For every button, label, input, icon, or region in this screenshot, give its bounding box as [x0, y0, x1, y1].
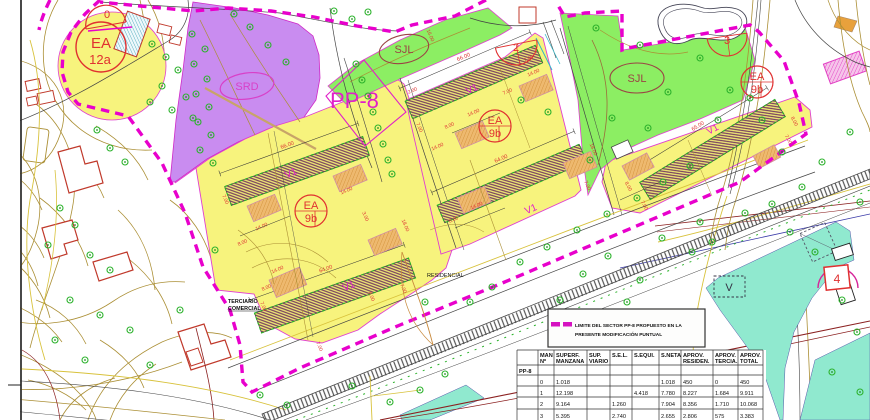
svg-text:1.018: 1.018: [661, 380, 675, 386]
svg-text:1: 1: [540, 391, 543, 397]
svg-text:2.740: 2.740: [612, 414, 626, 420]
svg-text:0: 0: [540, 380, 543, 386]
svg-text:SJL: SJL: [628, 73, 647, 85]
svg-text:9.911: 9.911: [740, 391, 754, 397]
svg-text:9b: 9b: [305, 213, 317, 225]
svg-text:EA: EA: [304, 200, 319, 212]
svg-text:2: 2: [513, 42, 519, 54]
svg-text:0: 0: [715, 380, 718, 386]
svg-text:2: 2: [540, 402, 543, 408]
svg-text:0: 0: [104, 9, 110, 21]
svg-text:9b: 9b: [751, 84, 763, 96]
svg-text:EA: EA: [750, 71, 765, 83]
svg-text:1.684: 1.684: [715, 391, 729, 397]
svg-text:12a: 12a: [89, 52, 111, 67]
svg-text:8.356: 8.356: [683, 402, 697, 408]
svg-text:S.EQUI.: S.EQUI.: [634, 353, 655, 359]
svg-text:VIARIO: VIARIO: [589, 359, 609, 365]
svg-text:575: 575: [715, 414, 724, 420]
svg-text:5.395: 5.395: [556, 414, 570, 420]
svg-text:TERCIA.: TERCIA.: [715, 359, 738, 365]
svg-text:EA: EA: [91, 35, 111, 52]
svg-text:7.780: 7.780: [661, 391, 675, 397]
svg-text:4.418: 4.418: [634, 391, 648, 397]
svg-text:2.806: 2.806: [683, 414, 697, 420]
svg-text:7.904: 7.904: [661, 402, 675, 408]
svg-text:10.068: 10.068: [740, 402, 757, 408]
svg-text:S.E.L.: S.E.L.: [612, 353, 628, 359]
svg-text:3: 3: [724, 35, 730, 47]
svg-text:SRD: SRD: [235, 81, 258, 93]
svg-text:TERCIARIO: TERCIARIO: [228, 299, 258, 305]
svg-text:12.198: 12.198: [556, 391, 573, 397]
svg-text:3.383: 3.383: [740, 414, 754, 420]
svg-text:9b: 9b: [489, 128, 501, 140]
svg-text:8.227: 8.227: [683, 391, 697, 397]
svg-text:9.164: 9.164: [556, 402, 570, 408]
svg-text:S.NETA: S.NETA: [661, 353, 681, 359]
svg-text:450: 450: [740, 380, 749, 386]
svg-text:MANZANA: MANZANA: [556, 359, 584, 365]
svg-text:1.260: 1.260: [612, 402, 626, 408]
svg-text:Nº: Nº: [540, 359, 546, 365]
svg-text:1.710: 1.710: [715, 402, 729, 408]
svg-text:V: V: [725, 282, 733, 294]
svg-text:3: 3: [540, 414, 543, 420]
svg-text:RESIDENCIAL: RESIDENCIAL: [427, 273, 464, 279]
svg-text:450: 450: [683, 380, 692, 386]
svg-text:PP-8: PP-8: [519, 369, 531, 375]
svg-text:TOTAL: TOTAL: [740, 359, 759, 365]
svg-text:1.018: 1.018: [556, 380, 570, 386]
svg-text:EA: EA: [488, 115, 503, 127]
svg-text:LIMITE DEL SECTOR PP-8 PROPUES: LIMITE DEL SECTOR PP-8 PROPUESTO EN LA: [575, 323, 682, 329]
svg-text:2.655: 2.655: [661, 414, 675, 420]
svg-text:4: 4: [834, 272, 841, 286]
svg-text:SJL: SJL: [395, 44, 414, 56]
svg-text:RESIDEN.: RESIDEN.: [683, 359, 710, 365]
